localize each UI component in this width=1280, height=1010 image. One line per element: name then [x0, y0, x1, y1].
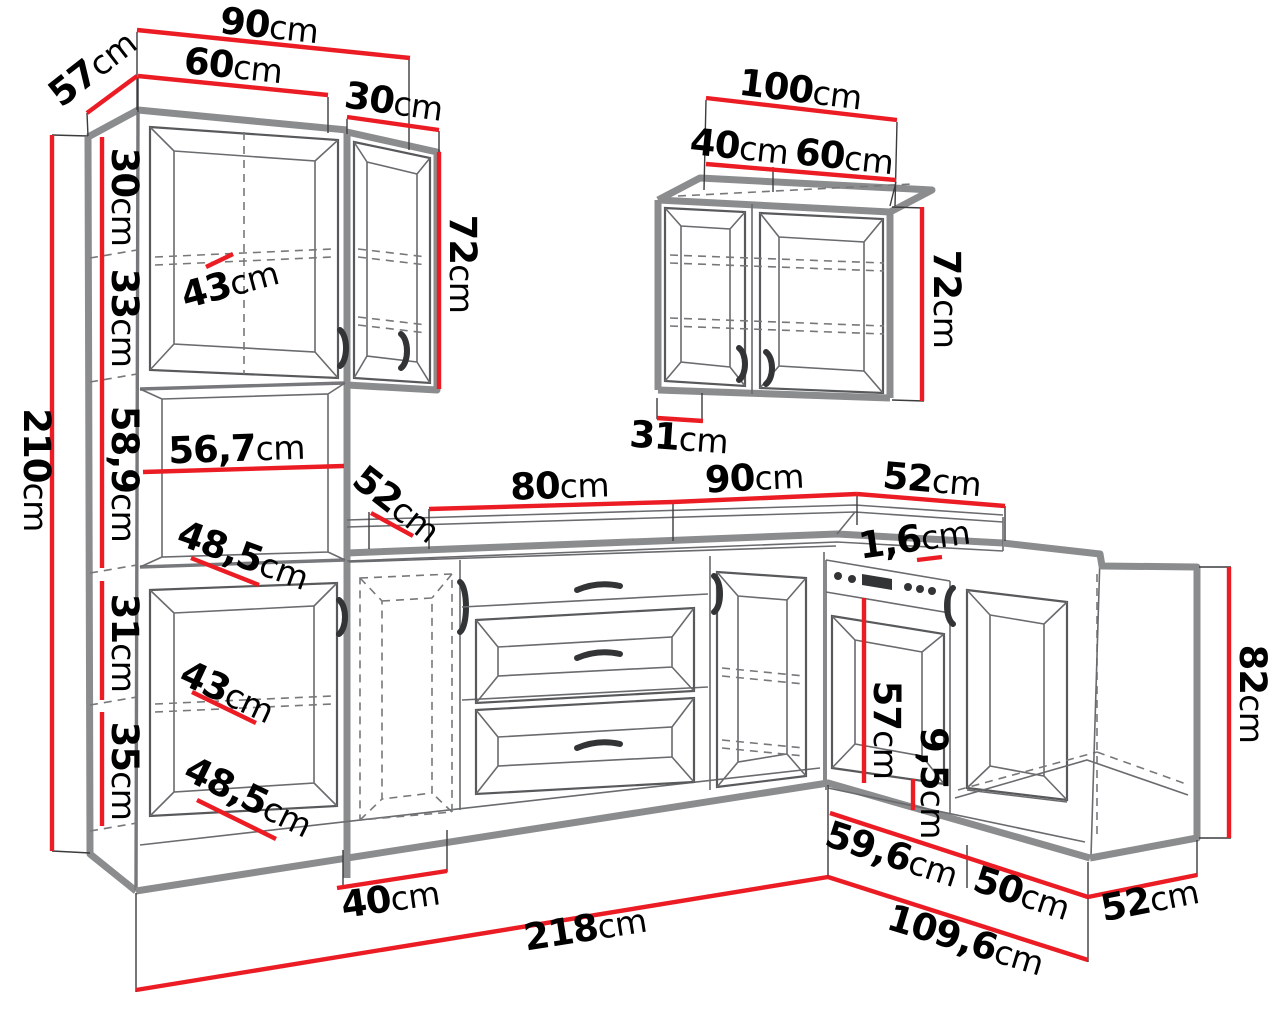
wall100-left-door-frame — [665, 208, 745, 386]
label-52-left: 52cm — [345, 457, 449, 552]
label-48-5-bottom: 48,5cm — [178, 748, 320, 847]
label-218: 218cm — [521, 898, 650, 960]
oven-knob-4 — [916, 585, 924, 593]
label-wall30-72: 72cm — [441, 215, 484, 314]
label-50: 50cm — [968, 857, 1075, 928]
label-counter-80: 80cm — [509, 462, 609, 508]
wall100-left-door-bevel — [665, 208, 745, 386]
label-s58-9: 58,9cm — [103, 406, 146, 543]
label-56-7: 56,7cm — [168, 425, 306, 473]
label-depth-57: 57cm — [40, 21, 144, 116]
label-wall100-60: 60cm — [793, 130, 896, 183]
corner-door-frame — [967, 590, 1067, 800]
corner-door-bevel — [967, 590, 1067, 800]
label-1-6: 1,6cm — [856, 510, 973, 568]
label-210: 210cm — [15, 408, 58, 532]
top-drawer-handle — [577, 584, 620, 590]
oven-knob-1 — [834, 572, 842, 580]
corner-interior-dashes — [958, 574, 1186, 836]
dimension-labels: 90cm 60cm 57cm 30cm 72cm 30cm 33cm 58,9c… — [15, 0, 1274, 984]
tall-top-door-interior-dashes — [155, 132, 333, 374]
wall-cabinet-100 — [658, 178, 932, 398]
label-wall100-100: 100cm — [737, 61, 865, 119]
corner-door-handle — [947, 588, 953, 624]
label-wall100-31: 31cm — [628, 413, 730, 463]
label-wall100-40: 40cm — [688, 120, 791, 173]
wall-cabinet-30 — [347, 132, 437, 390]
wall30-door-bevel — [354, 142, 430, 383]
wall100-left-door-handle — [739, 348, 745, 380]
tall-lower-door-handle — [339, 600, 345, 634]
wall100-right-door-handle — [766, 352, 772, 384]
label-9-5: 9,5cm — [912, 727, 955, 839]
label-oven-57: 57cm — [865, 681, 908, 780]
label-s30: 30cm — [103, 148, 146, 247]
label-s33: 33cm — [103, 269, 146, 368]
tall-cabinet-top-edge — [88, 110, 347, 137]
oven-knob-2 — [848, 575, 856, 583]
dim-line-218 — [136, 877, 828, 990]
tall-top-door-handle — [340, 330, 346, 366]
bottom-drawer-handle — [577, 742, 620, 748]
label-s31: 31cm — [103, 594, 146, 693]
oven-knob-5 — [928, 587, 936, 595]
label-tall-60: 60cm — [182, 39, 285, 92]
wall30-door-frame — [354, 142, 430, 383]
label-82: 82cm — [1231, 645, 1274, 744]
base40-door-dashed — [360, 574, 452, 820]
label-43-top: 43cm — [176, 250, 283, 317]
base-door-cabinet-handle — [714, 576, 720, 612]
label-s35: 35cm — [103, 722, 146, 821]
label-counter-52: 52cm — [881, 454, 983, 505]
corner-side-panel — [1003, 543, 1197, 858]
diagram-canvas: 90cm 60cm 57cm 30cm 72cm 30cm 33cm 58,9c… — [0, 0, 1280, 1010]
oven-knob-3 — [904, 583, 912, 591]
middle-drawer-handle — [577, 652, 620, 658]
corner-cabinet — [955, 543, 1197, 858]
kitchen-dimension-diagram: 90cm 60cm 57cm 30cm 72cm 30cm 33cm 58,9c… — [0, 0, 1280, 1010]
label-wall30-30: 30cm — [342, 73, 446, 129]
label-43-bottom: 43cm — [173, 651, 281, 732]
wall100-right-door-bevel — [760, 213, 883, 393]
label-corner-52: 52cm — [1097, 869, 1202, 930]
wall30-door-handle — [401, 334, 407, 368]
base-door-cabinet-dashes — [722, 668, 804, 756]
label-wall100-72: 72cm — [925, 250, 968, 349]
oven-display — [862, 574, 892, 590]
